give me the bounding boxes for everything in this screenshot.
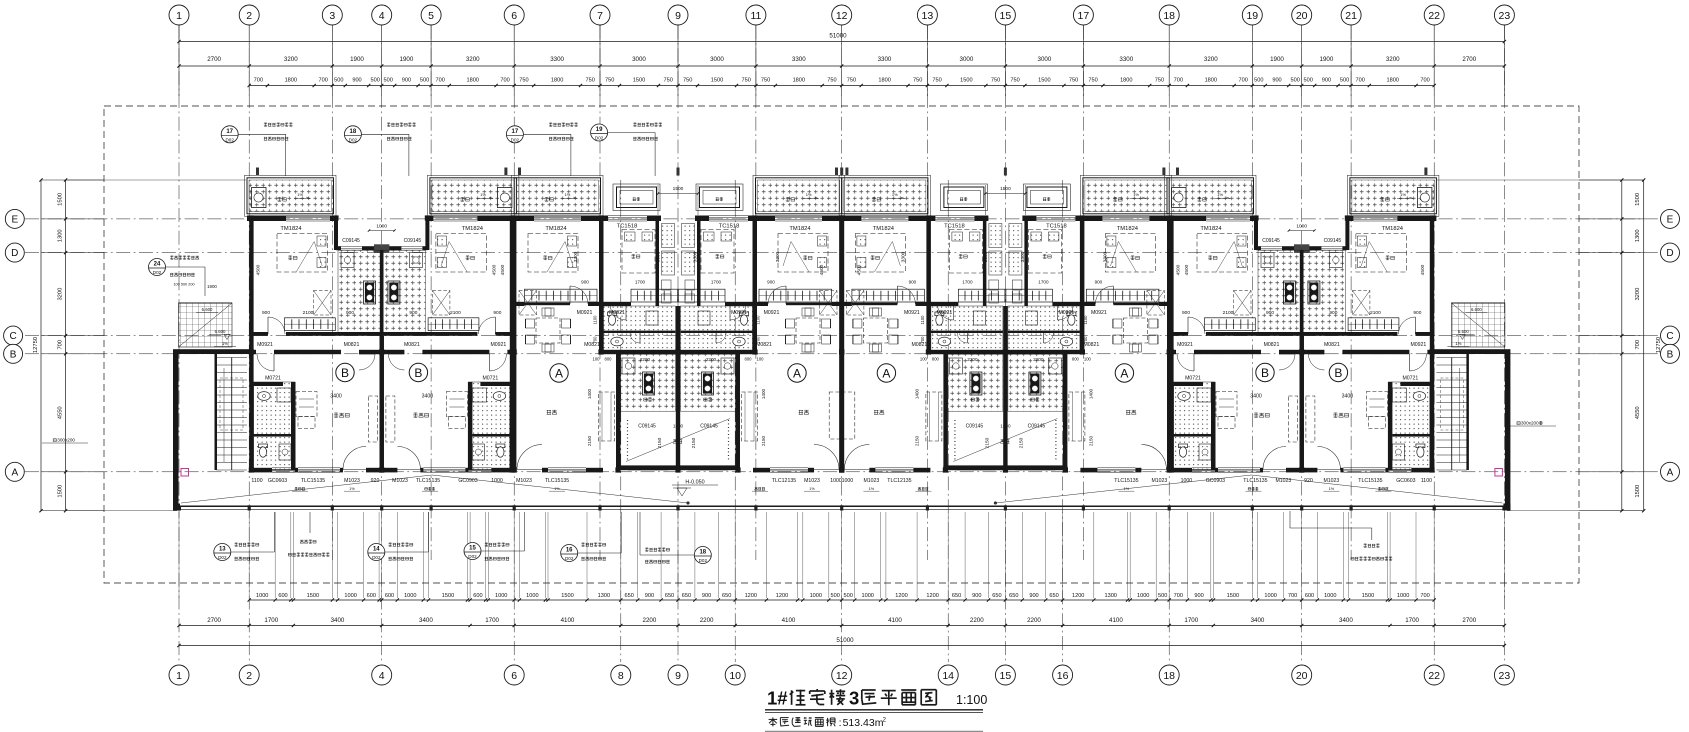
svg-text:1%: 1% <box>869 487 875 491</box>
svg-text:750: 750 <box>913 78 922 84</box>
svg-text:1900: 1900 <box>1270 56 1284 63</box>
svg-text:M0821: M0821 <box>1264 342 1280 348</box>
svg-text:4500: 4500 <box>1420 264 1426 275</box>
svg-text:13: 13 <box>219 547 226 553</box>
svg-text:1%: 1% <box>297 192 303 197</box>
svg-text:3300: 3300 <box>878 56 892 63</box>
svg-text:1%: 1% <box>1400 192 1406 197</box>
svg-text:17: 17 <box>226 129 233 135</box>
svg-text:3200: 3200 <box>466 56 480 63</box>
svg-text:1000: 1000 <box>256 593 268 599</box>
svg-text:1%: 1% <box>806 192 812 197</box>
svg-text:1700: 1700 <box>1038 280 1049 285</box>
svg-text:M0721: M0721 <box>1185 376 1201 382</box>
svg-text:1100: 1100 <box>1083 315 1088 325</box>
svg-text:C09145: C09145 <box>1262 238 1280 244</box>
svg-text:750: 750 <box>761 78 770 84</box>
svg-text:D02: D02 <box>225 137 234 142</box>
svg-text:D02: D02 <box>595 136 604 141</box>
svg-text:1300: 1300 <box>1104 593 1116 599</box>
svg-text:900: 900 <box>1095 280 1103 285</box>
svg-text:1700: 1700 <box>264 617 278 624</box>
svg-text:TM1824: TM1824 <box>1200 226 1222 232</box>
svg-text:TC1518: TC1518 <box>944 224 965 230</box>
svg-text:800: 800 <box>745 357 753 362</box>
svg-text:1: 1 <box>176 10 182 22</box>
svg-text:1800: 1800 <box>551 78 563 84</box>
svg-text:100: 100 <box>920 357 928 362</box>
svg-text:M0921: M0921 <box>731 310 747 316</box>
svg-text:B: B <box>341 366 349 380</box>
svg-text:M1023: M1023 <box>1275 478 1291 484</box>
svg-text:GC0603: GC0603 <box>1396 478 1415 484</box>
svg-text:TM1824: TM1824 <box>789 226 811 232</box>
svg-text:1%: 1% <box>349 487 355 491</box>
svg-text:750: 750 <box>932 78 941 84</box>
svg-text:700: 700 <box>254 78 263 84</box>
svg-text:1500: 1500 <box>58 193 64 206</box>
svg-text:6.600: 6.600 <box>1471 307 1482 312</box>
svg-text:1500: 1500 <box>1227 593 1239 599</box>
svg-text:900: 900 <box>1272 78 1281 84</box>
svg-text:TM1824: TM1824 <box>280 226 302 232</box>
svg-text:3400: 3400 <box>1251 617 1265 624</box>
svg-text:M0821: M0821 <box>911 342 927 348</box>
svg-text:1000: 1000 <box>1324 593 1336 599</box>
svg-text:1700: 1700 <box>711 280 722 285</box>
svg-text:M0921: M0921 <box>1091 310 1107 316</box>
svg-text:4500: 4500 <box>1184 264 1190 275</box>
svg-text:M1023: M1023 <box>392 478 408 484</box>
svg-text:1500: 1500 <box>960 78 972 84</box>
svg-text:4500: 4500 <box>500 264 506 275</box>
svg-text:B: B <box>1334 366 1342 380</box>
svg-text:1700: 1700 <box>1405 617 1419 624</box>
svg-text:750: 750 <box>1069 78 1078 84</box>
svg-text:16: 16 <box>566 548 573 554</box>
svg-text:2100: 2100 <box>1223 310 1234 316</box>
svg-text:M0921: M0921 <box>936 310 952 316</box>
svg-text:500: 500 <box>371 78 380 84</box>
svg-text:3300: 3300 <box>983 251 989 262</box>
svg-text:1000: 1000 <box>404 593 416 599</box>
svg-text:1800: 1800 <box>1386 78 1398 84</box>
svg-text:M0721: M0721 <box>482 376 498 382</box>
svg-text:600: 600 <box>385 593 394 599</box>
svg-text:1500: 1500 <box>1635 193 1641 206</box>
svg-text:1%: 1% <box>480 192 486 197</box>
svg-text:700: 700 <box>1356 78 1365 84</box>
svg-text:300x200: 300x200 <box>1521 421 1539 426</box>
svg-text:2150: 2150 <box>1018 437 1024 448</box>
svg-text:M0721: M0721 <box>265 376 281 382</box>
svg-text:21: 21 <box>1345 10 1357 22</box>
svg-text:M0921: M0921 <box>1177 342 1193 348</box>
svg-text:1100: 1100 <box>593 315 598 325</box>
svg-text:1300: 1300 <box>58 229 64 242</box>
svg-text:1500: 1500 <box>561 593 573 599</box>
svg-text:1800: 1800 <box>878 78 890 84</box>
svg-text:3400: 3400 <box>1339 617 1353 624</box>
svg-text:900: 900 <box>1182 310 1190 316</box>
svg-text:700: 700 <box>500 78 509 84</box>
svg-text:C: C <box>1666 331 1673 342</box>
svg-text:1100: 1100 <box>1421 478 1432 484</box>
svg-text:1100: 1100 <box>920 315 925 325</box>
svg-text:3400: 3400 <box>1342 394 1354 400</box>
svg-text:500: 500 <box>334 78 343 84</box>
svg-text:6: 6 <box>511 10 517 22</box>
svg-text:1: 1 <box>176 670 182 682</box>
svg-text:4: 4 <box>379 670 385 682</box>
svg-text:D02: D02 <box>565 556 574 561</box>
svg-text:2200: 2200 <box>643 617 657 624</box>
svg-text:19: 19 <box>1246 10 1258 22</box>
svg-text:D02: D02 <box>372 555 381 560</box>
svg-text:1900: 1900 <box>207 284 217 289</box>
svg-text:4: 4 <box>379 10 385 22</box>
svg-text:750: 750 <box>991 78 1000 84</box>
svg-text:3400: 3400 <box>1250 394 1262 400</box>
svg-text:3200: 3200 <box>1204 56 1218 63</box>
svg-text:1500: 1500 <box>711 78 723 84</box>
svg-text:1700: 1700 <box>485 617 499 624</box>
svg-text:A: A <box>1120 367 1128 381</box>
svg-text:1800: 1800 <box>793 78 805 84</box>
svg-text:M0921: M0921 <box>904 310 920 316</box>
svg-text:750: 750 <box>664 78 673 84</box>
svg-text:TM1824: TM1824 <box>462 226 484 232</box>
svg-text:750: 750 <box>1010 78 1019 84</box>
svg-text:1500: 1500 <box>633 78 645 84</box>
svg-text:C09145: C09145 <box>404 238 422 244</box>
svg-text:650: 650 <box>1049 593 1058 599</box>
svg-text:3400: 3400 <box>419 617 433 624</box>
svg-text:1000: 1000 <box>376 224 387 230</box>
svg-text:1100: 1100 <box>251 478 262 484</box>
svg-text:650: 650 <box>665 593 674 599</box>
svg-text:100: 100 <box>757 357 765 362</box>
svg-text:900: 900 <box>767 280 775 285</box>
svg-text:1000: 1000 <box>830 478 842 484</box>
svg-text:M1023: M1023 <box>1151 478 1167 484</box>
svg-text:750: 750 <box>586 78 595 84</box>
svg-text:TC1518: TC1518 <box>617 224 638 230</box>
svg-text:D: D <box>11 248 18 259</box>
svg-text:500: 500 <box>384 78 393 84</box>
svg-text:TLC12135: TLC12135 <box>887 478 911 484</box>
svg-text:900: 900 <box>1029 593 1038 599</box>
svg-text:900: 900 <box>1322 78 1331 84</box>
svg-text:3: 3 <box>849 688 859 709</box>
svg-text:M0921: M0921 <box>1058 310 1074 316</box>
svg-text:C09145: C09145 <box>638 424 656 430</box>
svg-text:3200: 3200 <box>284 56 298 63</box>
svg-text:650: 650 <box>722 593 731 599</box>
svg-text:20: 20 <box>1296 10 1308 22</box>
svg-text:TLC15135: TLC15135 <box>301 478 325 484</box>
svg-text:M0921: M0921 <box>577 310 593 316</box>
svg-text:1300: 1300 <box>598 593 610 599</box>
svg-text:500: 500 <box>1254 78 1263 84</box>
svg-text:20: 20 <box>1296 670 1308 682</box>
svg-text:650: 650 <box>952 593 961 599</box>
svg-text:1200: 1200 <box>895 593 907 599</box>
svg-text:B: B <box>10 349 17 360</box>
svg-text:H-0.050: H-0.050 <box>685 480 704 486</box>
svg-text:750: 750 <box>1088 78 1097 84</box>
svg-text:1000: 1000 <box>842 478 854 484</box>
svg-text:900: 900 <box>909 280 917 285</box>
svg-text:600: 600 <box>367 593 376 599</box>
svg-text:2200: 2200 <box>970 617 984 624</box>
svg-text:500: 500 <box>420 78 429 84</box>
svg-text:6.600: 6.600 <box>202 307 213 312</box>
svg-text:M0921: M0921 <box>1410 342 1426 348</box>
svg-text:C09145: C09145 <box>342 238 360 244</box>
svg-text:2700: 2700 <box>1462 617 1476 624</box>
svg-text:C09145: C09145 <box>966 424 984 430</box>
svg-text:8: 8 <box>618 670 624 682</box>
svg-text:10: 10 <box>729 670 741 682</box>
svg-text:900: 900 <box>1413 310 1421 316</box>
svg-text:700: 700 <box>1174 78 1183 84</box>
svg-text:M0921: M0921 <box>609 310 625 316</box>
svg-text:513.43m: 513.43m <box>843 717 884 729</box>
svg-text:24: 24 <box>154 262 161 268</box>
svg-text:M0821: M0821 <box>1324 342 1340 348</box>
svg-text:15: 15 <box>1000 670 1012 682</box>
svg-text:700: 700 <box>1420 593 1429 599</box>
svg-text:1%: 1% <box>1455 341 1461 346</box>
svg-text:1700: 1700 <box>635 280 646 285</box>
svg-text:1700: 1700 <box>962 280 973 285</box>
svg-text:18: 18 <box>699 550 706 556</box>
svg-text:1500: 1500 <box>58 485 64 498</box>
svg-text:51000: 51000 <box>829 33 847 40</box>
svg-text:M1023: M1023 <box>804 478 820 484</box>
svg-text:900: 900 <box>581 280 589 285</box>
svg-text:1400: 1400 <box>914 388 919 399</box>
svg-text:9: 9 <box>675 10 681 22</box>
svg-text:9: 9 <box>675 670 681 682</box>
svg-text:750: 750 <box>742 78 751 84</box>
svg-text:1200: 1200 <box>745 593 757 599</box>
svg-text:17: 17 <box>512 129 519 135</box>
svg-text:TM1824: TM1824 <box>1382 226 1404 232</box>
svg-text:1200: 1200 <box>926 593 938 599</box>
svg-text:1%: 1% <box>892 192 898 197</box>
svg-text:700: 700 <box>1239 78 1248 84</box>
svg-text:3000: 3000 <box>632 56 646 63</box>
svg-text:23: 23 <box>1499 10 1511 22</box>
svg-text:1%: 1% <box>1133 192 1139 197</box>
svg-text:650: 650 <box>625 593 634 599</box>
svg-text:E: E <box>1667 215 1674 226</box>
svg-text:1000: 1000 <box>1137 593 1149 599</box>
svg-text:700: 700 <box>1288 593 1297 599</box>
svg-text:51000: 51000 <box>836 637 854 644</box>
svg-text:13: 13 <box>922 10 934 22</box>
svg-text:TC1518: TC1518 <box>1046 224 1067 230</box>
svg-text:3000: 3000 <box>960 56 974 63</box>
svg-text:1000: 1000 <box>1264 593 1276 599</box>
svg-text:900: 900 <box>409 310 417 316</box>
svg-text:4500: 4500 <box>819 264 825 275</box>
svg-text:4500: 4500 <box>492 264 498 275</box>
svg-text:1900: 1900 <box>400 56 414 63</box>
svg-text::: : <box>839 717 842 729</box>
svg-text:700: 700 <box>319 78 328 84</box>
svg-text:15: 15 <box>1000 10 1012 22</box>
svg-text:1900: 1900 <box>350 56 364 63</box>
svg-text:750: 750 <box>519 78 528 84</box>
svg-text:2100: 2100 <box>303 310 314 316</box>
svg-text:2700: 2700 <box>207 56 221 63</box>
svg-text:750: 750 <box>605 78 614 84</box>
svg-text:500: 500 <box>1158 593 1167 599</box>
svg-text:2: 2 <box>246 670 252 682</box>
svg-text:1000: 1000 <box>1181 478 1193 484</box>
svg-text:D: D <box>1666 248 1673 259</box>
svg-text:3300: 3300 <box>550 56 564 63</box>
svg-text:1800: 1800 <box>1205 78 1217 84</box>
svg-text:22: 22 <box>1428 10 1440 22</box>
svg-text:M0921: M0921 <box>764 310 780 316</box>
svg-text:1500: 1500 <box>1635 485 1641 498</box>
svg-text:22: 22 <box>1428 670 1440 682</box>
svg-text:TLC15135: TLC15135 <box>1114 478 1138 484</box>
svg-text:2150: 2150 <box>761 435 766 446</box>
svg-text:6.600: 6.600 <box>215 329 226 334</box>
svg-text:900: 900 <box>346 310 354 316</box>
svg-text:1%: 1% <box>565 192 571 197</box>
svg-text:650: 650 <box>682 593 691 599</box>
svg-text:650: 650 <box>992 593 1001 599</box>
svg-text:750: 750 <box>827 78 836 84</box>
svg-text:D02: D02 <box>468 554 477 559</box>
svg-text:M0821: M0821 <box>756 342 772 348</box>
svg-text:23: 23 <box>1499 670 1511 682</box>
svg-text:2700: 2700 <box>1462 56 1476 63</box>
svg-text:B: B <box>1667 349 1674 360</box>
svg-text:700: 700 <box>1420 78 1429 84</box>
svg-text:5: 5 <box>428 10 434 22</box>
svg-text:1300: 1300 <box>1635 229 1641 242</box>
svg-text:11: 11 <box>750 10 761 22</box>
svg-text:1100: 1100 <box>756 315 761 325</box>
svg-text:500: 500 <box>844 593 853 599</box>
svg-text:800: 800 <box>605 357 613 362</box>
svg-text:2200: 2200 <box>1027 617 1041 624</box>
svg-text:600: 600 <box>1305 593 1314 599</box>
svg-text:1400: 1400 <box>1088 388 1093 399</box>
svg-text:19: 19 <box>596 127 603 133</box>
svg-text:1%: 1% <box>222 341 228 346</box>
svg-text:TLC12135: TLC12135 <box>772 478 796 484</box>
svg-text:3400: 3400 <box>331 617 345 624</box>
svg-text:2200: 2200 <box>1033 357 1044 362</box>
svg-text:C09145: C09145 <box>1324 238 1342 244</box>
svg-text:2150: 2150 <box>587 435 592 446</box>
svg-text:1:100: 1:100 <box>956 693 987 707</box>
svg-text:1200: 1200 <box>776 593 788 599</box>
svg-text:700: 700 <box>436 78 445 84</box>
svg-text:2150: 2150 <box>691 437 697 448</box>
svg-text:2150: 2150 <box>914 435 919 446</box>
svg-text:500: 500 <box>1304 78 1313 84</box>
svg-text:1500: 1500 <box>1000 186 1011 192</box>
svg-text:1500: 1500 <box>673 186 684 192</box>
svg-text:1700: 1700 <box>1184 617 1198 624</box>
svg-text:900: 900 <box>1266 310 1274 316</box>
svg-text:1000: 1000 <box>526 593 538 599</box>
svg-text:100: 100 <box>1084 357 1092 362</box>
svg-text:1000: 1000 <box>491 478 503 484</box>
svg-text:900: 900 <box>972 593 981 599</box>
svg-text:12750: 12750 <box>1656 337 1662 353</box>
svg-text:4100: 4100 <box>1109 617 1123 624</box>
svg-text:12: 12 <box>836 10 848 22</box>
svg-text:4550: 4550 <box>58 406 64 419</box>
svg-text:900: 900 <box>1194 593 1203 599</box>
svg-text:1800: 1800 <box>285 78 297 84</box>
svg-text:2100: 2100 <box>1370 310 1381 316</box>
svg-text:2200: 2200 <box>640 357 651 362</box>
svg-text:3400: 3400 <box>330 394 342 400</box>
svg-text:3200: 3200 <box>58 288 64 301</box>
svg-text:6.600: 6.600 <box>1458 329 1469 334</box>
svg-text:700: 700 <box>1083 336 1088 344</box>
svg-text:700: 700 <box>58 340 64 350</box>
svg-text:500: 500 <box>831 593 840 599</box>
svg-text:800: 800 <box>932 357 940 362</box>
svg-text:3000: 3000 <box>1038 56 1052 63</box>
svg-text:500: 500 <box>1340 78 1349 84</box>
svg-text:2700: 2700 <box>207 617 221 624</box>
svg-text:3200: 3200 <box>1386 56 1400 63</box>
svg-text:4550: 4550 <box>1635 406 1641 419</box>
svg-text:1000: 1000 <box>344 593 356 599</box>
svg-text:7: 7 <box>597 10 603 22</box>
svg-text:3300: 3300 <box>792 56 806 63</box>
svg-text:1500: 1500 <box>1038 78 1050 84</box>
svg-text:3300: 3300 <box>693 251 699 262</box>
svg-text:18: 18 <box>1163 10 1175 22</box>
svg-text:1800: 1800 <box>466 78 478 84</box>
svg-text:1500: 1500 <box>1362 593 1374 599</box>
svg-text:1%: 1% <box>1329 487 1335 491</box>
svg-text:700: 700 <box>593 336 598 344</box>
svg-text:TM1824: TM1824 <box>1117 226 1139 232</box>
svg-text:4100: 4100 <box>782 617 796 624</box>
svg-text:600: 600 <box>473 593 482 599</box>
svg-text:900: 900 <box>402 78 411 84</box>
svg-text:14: 14 <box>942 670 954 682</box>
svg-text:650: 650 <box>1009 593 1018 599</box>
svg-text:14: 14 <box>373 547 380 553</box>
svg-text:16: 16 <box>1057 670 1069 682</box>
svg-text:600: 600 <box>278 593 287 599</box>
svg-text:C: C <box>9 331 16 342</box>
svg-text:3300: 3300 <box>656 251 662 262</box>
svg-text:2200: 2200 <box>967 357 978 362</box>
svg-text:900: 900 <box>645 593 654 599</box>
svg-text:3400: 3400 <box>422 394 434 400</box>
svg-text:A: A <box>882 367 890 381</box>
svg-text:2: 2 <box>246 10 252 22</box>
svg-text:D02: D02 <box>153 270 162 275</box>
